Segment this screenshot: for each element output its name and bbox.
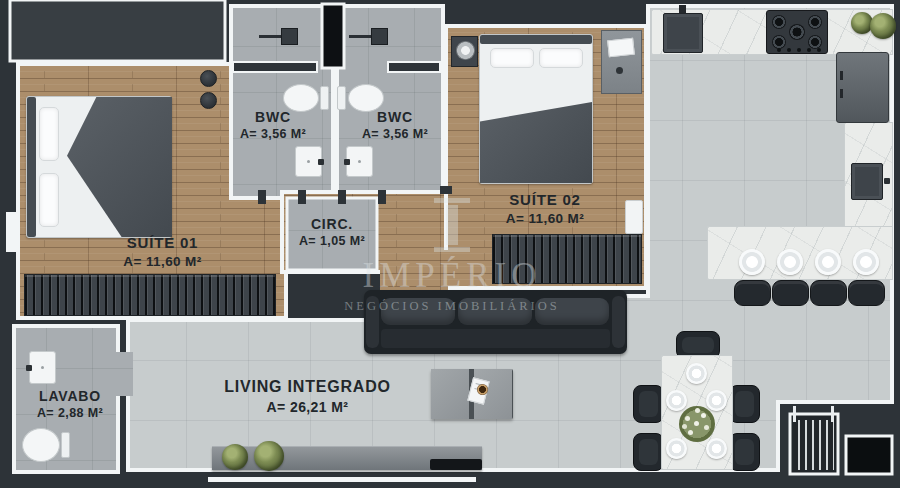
counter-sink [851,163,883,200]
faucet [344,159,350,165]
cooktop [766,10,828,54]
knob [797,48,801,52]
room-area: A= 11,60 M² [60,253,265,271]
plant [254,441,284,471]
laptop [607,38,635,58]
room-area: A= 2,88 M² [16,405,124,421]
door-jamb [338,190,346,204]
plate [686,363,707,384]
sofa-cushion [535,298,609,325]
shaft [322,4,344,68]
shower-divider [388,62,440,72]
sofa-cushion [458,298,532,325]
pouf [200,92,217,109]
pillow [39,107,59,161]
chair-pad [639,439,658,465]
room-label-suite02: SUÍTE 02 A= 11,60 M² [450,190,640,227]
plate [815,249,841,275]
faucet [26,365,32,371]
wardrobe [24,274,276,316]
window [6,212,18,252]
door-jamb [378,190,386,204]
door-jamb [298,190,306,204]
plant [222,444,248,470]
door-jamb [258,190,266,204]
room-label-bwc2: BWC A= 3,56 M² [350,108,440,142]
dining-chair [633,433,664,471]
bathroom-sink [29,351,56,384]
plate [706,390,727,411]
sofa-cushion [381,298,455,325]
burner [772,35,786,49]
plate [777,249,803,275]
elevator-shaft [846,436,892,474]
burner [772,15,786,29]
fridge-handle [840,89,843,98]
flower-centerpiece [679,406,715,442]
room-name: SUÍTE 01 [60,233,265,253]
stairs-rails [794,420,834,470]
shower-arm [259,35,282,38]
sofa-armrest [366,296,379,348]
room-name: BWC [350,108,440,126]
bathroom-sink [346,146,373,177]
burner [789,24,805,40]
bar-stool [734,280,771,306]
pillow [490,48,534,68]
dining-chair [729,433,760,471]
plate [666,390,687,411]
bathroom-sink [295,146,322,177]
blanket [67,97,172,237]
headboard [27,97,36,237]
pillow [539,48,583,68]
shower-head [281,28,298,45]
shower-head [371,28,388,45]
plate [853,249,879,275]
room-name: SUÍTE 02 [450,190,640,210]
toilet-tank [320,86,329,110]
stairs-post [793,406,796,422]
kitchen-sink [663,13,703,53]
room-label-bwc1: BWC A= 3,56 M² [228,108,318,142]
desk-item [616,67,623,74]
room-label-suite01: SUÍTE 01 A= 11,60 M² [60,233,265,270]
stairs-post [831,406,834,422]
pouf [200,70,217,87]
dining-chair [633,385,664,423]
shower-divider [233,62,317,72]
refrigerator [836,52,889,123]
toilet [22,428,70,462]
plate [666,438,687,459]
plate [739,249,765,275]
sofa-armrest [612,296,625,348]
shower-arm [349,35,372,38]
chair-pad [735,391,754,417]
bar-stool [772,280,809,306]
toilet-tank [61,432,70,458]
room-label-lavabo: LAVABO A= 2,88 M² [16,387,124,421]
room-label-circ: CIRC. A= 1,05 M² [287,215,377,249]
room-name: CIRC. [287,215,377,233]
headboard [480,35,592,44]
toilet-tank [337,86,346,110]
bar-stool [810,280,847,306]
room-name: BWC [228,108,318,126]
faucet [884,178,890,184]
window [208,477,476,482]
double-bed [26,96,172,238]
coffee-cup [477,384,488,395]
floor-plan: SUÍTE 01 A= 11,60 M² BWC A= 3,56 M² BWC … [0,0,900,488]
bar-stool [848,280,885,306]
room-area: A= 26,21 M² [185,398,430,416]
room-area: A= 1,05 M² [287,233,377,249]
plant [870,13,896,39]
knob [807,48,811,52]
dining-chair [729,385,760,423]
sofa-seat [381,329,610,348]
room-name: LAVABO [16,387,124,405]
nightstand [451,36,478,67]
burner [808,15,822,29]
blanket [480,95,592,183]
double-bed [479,34,593,184]
table-top [431,369,469,419]
knob [777,48,781,52]
desk [601,30,642,94]
room-label-living: LIVING INTEGRADO A= 26,21 M² [185,377,430,416]
room-area: A= 3,56 M² [350,126,440,142]
burner [808,35,822,49]
plate [706,438,727,459]
neighbor-block [10,0,225,61]
knob [817,48,821,52]
faucet [318,159,324,165]
tv [430,459,482,470]
chair-pad [682,337,714,353]
lamp [456,41,475,60]
wardrobe [492,234,642,284]
sofa [364,290,627,354]
room-area: A= 11,60 M² [450,210,640,228]
knob [787,48,791,52]
room-name: LIVING INTEGRADO [185,377,430,398]
fridge-handle [840,71,843,80]
pillow [39,173,59,227]
chair-pad [735,439,754,465]
toilet-bowl [22,428,60,462]
room-area: A= 3,56 M² [228,126,318,142]
chair-pad [639,391,658,417]
